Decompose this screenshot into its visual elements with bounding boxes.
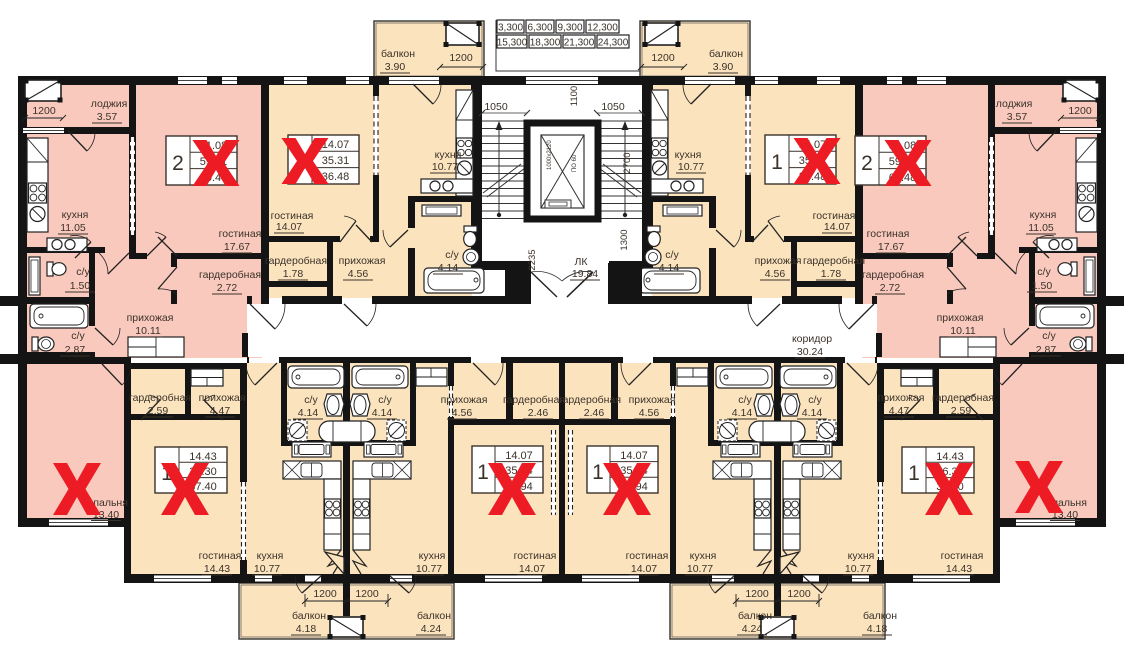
svg-text:10.77: 10.77 xyxy=(416,563,442,575)
svg-text:1200: 1200 xyxy=(355,588,379,600)
svg-text:прихожая: прихожая xyxy=(199,392,246,404)
svg-text:14.43: 14.43 xyxy=(946,563,972,575)
svg-text:прихожая: прихожая xyxy=(629,394,676,406)
svg-text:12,300: 12,300 xyxy=(587,23,618,34)
svg-text:гардеробная: гардеробная xyxy=(265,255,327,267)
svg-text:9,300: 9,300 xyxy=(557,23,582,34)
svg-text:с/у: с/у xyxy=(808,394,822,406)
svg-text:2.72: 2.72 xyxy=(880,282,901,294)
svg-text:4.14: 4.14 xyxy=(659,262,680,274)
svg-text:гардеробная: гардеробная xyxy=(862,269,924,281)
svg-text:14.07: 14.07 xyxy=(631,563,657,575)
svg-text:гардеробная: гардеробная xyxy=(803,255,865,267)
svg-text:с/у: с/у xyxy=(76,266,90,278)
svg-text:3,300: 3,300 xyxy=(498,23,523,34)
svg-text:14.07: 14.07 xyxy=(519,563,545,575)
svg-text:2.46: 2.46 xyxy=(584,407,605,419)
svg-text:4.56: 4.56 xyxy=(765,268,786,280)
svg-text:4.18: 4.18 xyxy=(296,623,317,635)
svg-text:гостиная: гостиная xyxy=(514,550,557,562)
svg-text:прихожая: прихожая xyxy=(937,312,984,324)
svg-text:1050: 1050 xyxy=(601,101,625,113)
svg-text:10.11: 10.11 xyxy=(135,325,161,337)
svg-text:1200: 1200 xyxy=(32,105,56,117)
svg-text:4.24: 4.24 xyxy=(742,623,763,635)
svg-text:2.87: 2.87 xyxy=(1036,344,1057,356)
svg-text:1100: 1100 xyxy=(569,86,580,106)
svg-text:с/у: с/у xyxy=(1037,266,1051,278)
svg-text:1.78: 1.78 xyxy=(283,268,304,280)
svg-text:10.77: 10.77 xyxy=(254,563,280,575)
svg-text:лоджия: лоджия xyxy=(91,98,128,110)
svg-text:коридор: коридор xyxy=(792,333,832,345)
svg-text:2.87: 2.87 xyxy=(65,344,86,356)
svg-text:10.77: 10.77 xyxy=(687,563,713,575)
svg-text:14.07: 14.07 xyxy=(620,450,648,462)
svg-text:4.14: 4.14 xyxy=(802,407,823,419)
svg-text:17.67: 17.67 xyxy=(878,241,904,253)
svg-text:3.90: 3.90 xyxy=(713,61,734,73)
svg-text:с/у: с/у xyxy=(1042,330,1056,342)
svg-text:балкон: балкон xyxy=(863,610,897,622)
svg-text:балкон: балкон xyxy=(709,48,743,60)
svg-text:4.24: 4.24 xyxy=(421,623,442,635)
svg-text:прихожая: прихожая xyxy=(441,394,488,406)
svg-text:с/у: с/у xyxy=(304,394,318,406)
svg-text:10.77: 10.77 xyxy=(845,563,871,575)
svg-text:кухня: кухня xyxy=(675,149,702,161)
svg-text:10.11: 10.11 xyxy=(950,325,976,337)
svg-text:4.56: 4.56 xyxy=(348,268,369,280)
svg-text:14.43: 14.43 xyxy=(204,563,230,575)
svg-text:прихожая: прихожая xyxy=(339,255,386,267)
svg-text:3.57: 3.57 xyxy=(97,111,118,123)
svg-text:11.05: 11.05 xyxy=(60,222,86,234)
svg-text:кухня: кухня xyxy=(435,149,462,161)
svg-text:14.43: 14.43 xyxy=(936,451,964,463)
svg-text:с/у: с/у xyxy=(738,394,752,406)
svg-text:гостиная: гостиная xyxy=(941,550,984,562)
svg-text:24,300: 24,300 xyxy=(598,38,629,49)
svg-text:гардеробная: гардеробная xyxy=(503,394,565,406)
svg-text:1200: 1200 xyxy=(313,588,337,600)
svg-text:кухня: кухня xyxy=(848,550,875,562)
svg-text:1300: 1300 xyxy=(619,229,630,250)
svg-text:35.31: 35.31 xyxy=(322,155,350,167)
svg-text:1200: 1200 xyxy=(651,52,675,64)
svg-text:с/у: с/у xyxy=(378,394,392,406)
svg-text:4.14: 4.14 xyxy=(298,407,319,419)
svg-text:4.47: 4.47 xyxy=(889,405,910,417)
svg-text:гостиная: гостиная xyxy=(867,228,910,240)
svg-text:1000x2120: 1000x2120 xyxy=(547,140,553,170)
svg-text:1: 1 xyxy=(908,462,920,485)
svg-text:1050: 1050 xyxy=(484,101,508,113)
svg-text:1.50: 1.50 xyxy=(1032,280,1053,292)
svg-text:ЛК: ЛК xyxy=(574,256,588,268)
svg-text:4.56: 4.56 xyxy=(452,407,473,419)
svg-text:гардеробная: гардеробная xyxy=(559,394,621,406)
svg-text:с/у: с/у xyxy=(665,249,679,261)
svg-text:прихожая: прихожая xyxy=(127,312,174,324)
svg-text:гостиная: гостиная xyxy=(626,550,669,562)
svg-text:кухня: кухня xyxy=(419,550,446,562)
svg-text:4.47: 4.47 xyxy=(210,405,231,417)
svg-text:2700: 2700 xyxy=(622,152,633,173)
svg-text:гостиная: гостиная xyxy=(199,550,242,562)
svg-text:4.56: 4.56 xyxy=(639,407,660,419)
svg-text:1200: 1200 xyxy=(787,588,811,600)
svg-text:балкон: балкон xyxy=(417,610,451,622)
svg-text:2: 2 xyxy=(861,152,873,175)
svg-text:прихожая: прихожая xyxy=(878,392,925,404)
svg-text:1: 1 xyxy=(477,461,489,484)
svg-text:4.14: 4.14 xyxy=(732,407,753,419)
svg-text:2.46: 2.46 xyxy=(528,407,549,419)
svg-text:11.05: 11.05 xyxy=(1028,222,1054,234)
svg-text:14.07: 14.07 xyxy=(276,221,302,233)
svg-text:2: 2 xyxy=(172,152,184,175)
svg-text:4.14: 4.14 xyxy=(438,262,459,274)
svg-text:1: 1 xyxy=(771,151,783,174)
svg-text:гостиная: гостиная xyxy=(219,228,262,240)
svg-text:лоджия: лоджия xyxy=(996,98,1033,110)
svg-text:прихожая: прихожая xyxy=(755,255,802,267)
svg-text:19.84: 19.84 xyxy=(572,268,598,280)
svg-text:18,300: 18,300 xyxy=(530,38,561,49)
svg-text:15,300: 15,300 xyxy=(497,38,528,49)
svg-text:21,300: 21,300 xyxy=(564,38,595,49)
svg-text:гардеробная: гардеробная xyxy=(932,392,994,404)
svg-text:кухня: кухня xyxy=(62,209,89,221)
svg-text:1: 1 xyxy=(592,461,604,484)
svg-text:14.07: 14.07 xyxy=(505,450,533,462)
svg-text:кухня: кухня xyxy=(1030,209,1057,221)
svg-text:30.24: 30.24 xyxy=(797,346,823,358)
svg-text:4.14: 4.14 xyxy=(372,407,393,419)
svg-text:10.77: 10.77 xyxy=(432,161,458,173)
svg-text:кухня: кухня xyxy=(257,550,284,562)
svg-text:3.90: 3.90 xyxy=(385,61,406,73)
svg-text:балкон: балкон xyxy=(292,610,326,622)
svg-text:балкон: балкон xyxy=(381,48,415,60)
svg-text:1200: 1200 xyxy=(449,52,473,64)
svg-text:2.59: 2.59 xyxy=(951,405,972,417)
svg-text:14.43: 14.43 xyxy=(189,451,217,463)
svg-text:17.67: 17.67 xyxy=(224,241,250,253)
svg-text:с/у: с/у xyxy=(445,249,459,261)
svg-text:балкон: балкон xyxy=(738,610,772,622)
svg-text:2235: 2235 xyxy=(527,249,538,270)
svg-text:1200: 1200 xyxy=(745,588,769,600)
svg-text:6,300: 6,300 xyxy=(527,23,552,34)
svg-text:гардеробная: гардеробная xyxy=(129,392,191,404)
svg-text:с/у: с/у xyxy=(71,330,85,342)
svg-text:10.77: 10.77 xyxy=(678,161,704,173)
svg-text:2.59: 2.59 xyxy=(148,405,169,417)
svg-text:1.78: 1.78 xyxy=(821,268,842,280)
svg-text:2.72: 2.72 xyxy=(217,282,238,294)
svg-text:1200: 1200 xyxy=(1068,105,1092,117)
svg-text:ПО 60: ПО 60 xyxy=(572,154,578,172)
svg-text:14.07: 14.07 xyxy=(824,221,850,233)
svg-text:кухня: кухня xyxy=(690,550,717,562)
svg-text:3.57: 3.57 xyxy=(1007,111,1028,123)
svg-text:4.18: 4.18 xyxy=(867,623,888,635)
svg-text:гардеробная: гардеробная xyxy=(199,269,261,281)
svg-text:1.50: 1.50 xyxy=(70,280,91,292)
